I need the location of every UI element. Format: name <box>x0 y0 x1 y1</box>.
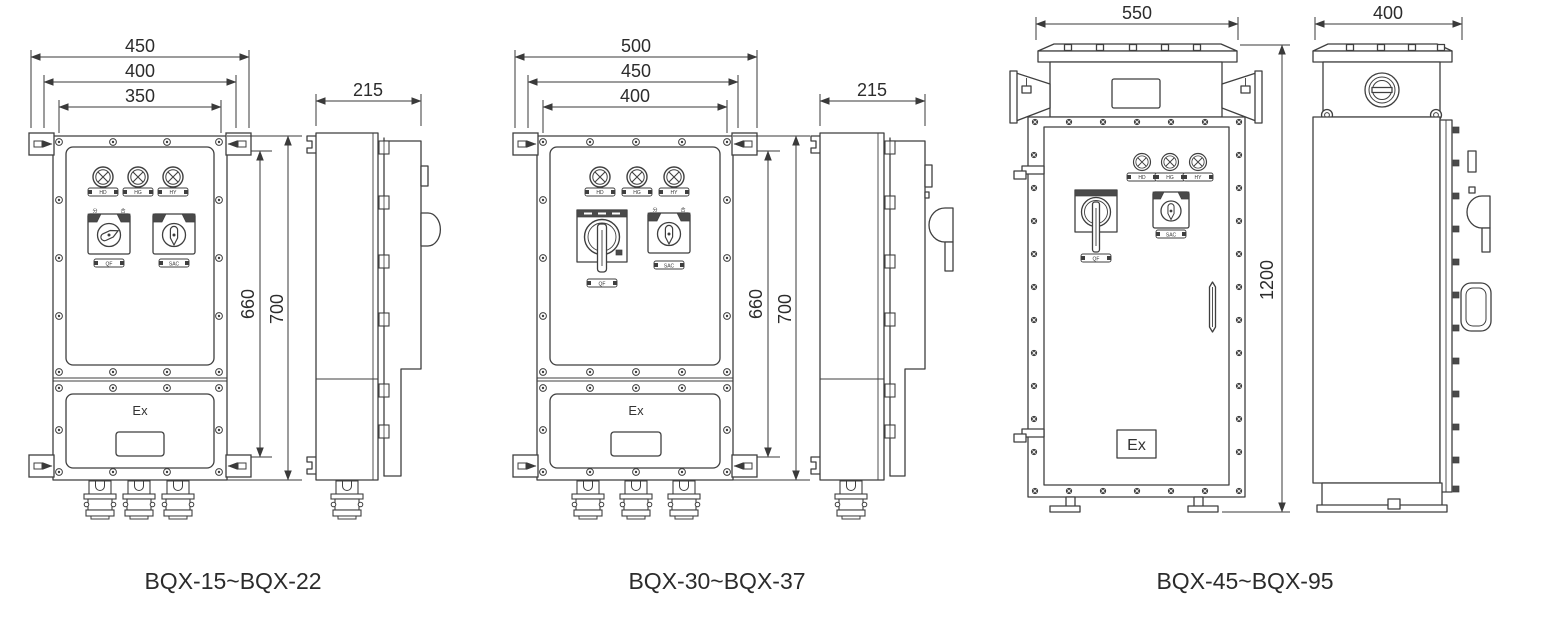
nameplate <box>116 432 164 456</box>
group-bqx-45-95: HD HG HY QF SA <box>1010 3 1491 594</box>
cable-gland-icon <box>123 481 155 519</box>
lamp-icon <box>128 167 148 187</box>
lamp-label: HY <box>170 190 178 196</box>
lamp-icon <box>1134 154 1151 171</box>
cable-gland-icon <box>572 481 604 519</box>
dim-width-inner: 400 <box>620 86 650 106</box>
side-view-2 <box>811 133 953 519</box>
breaker-lever-side <box>1467 196 1490 228</box>
cable-glands <box>84 481 194 519</box>
ex-marking: Ex <box>132 403 148 418</box>
lamp-icon <box>590 167 610 187</box>
dim-width-inner: 350 <box>125 86 155 106</box>
dim-width-outer: 450 <box>125 36 155 56</box>
switch-corner-label: 合 <box>680 207 685 214</box>
technical-drawing: HD HG HY 分 合 QF <box>0 0 1550 619</box>
base-plinth <box>1322 483 1442 507</box>
dim-height-outer: 700 <box>267 294 287 324</box>
side-view-3 <box>1313 44 1491 512</box>
lamp-icon <box>163 167 183 187</box>
dim-depth: 215 <box>857 80 887 100</box>
lamp-label: HY <box>671 190 679 196</box>
lamp-label: HY <box>1195 175 1203 181</box>
dim-height-inner: 660 <box>746 289 766 319</box>
entry-gland-icon <box>1365 73 1399 107</box>
cable-horn-left <box>1010 71 1050 123</box>
group-bqx-30-37: HD HG HY QF 分 合 <box>513 36 953 594</box>
switch-label: QF <box>106 262 113 268</box>
switch-corner-label: 分 <box>652 207 657 214</box>
drawing-sheet: HD HG HY 分 合 QF <box>0 0 1550 619</box>
door-latch <box>925 165 932 187</box>
switch-label: SAC <box>169 262 180 268</box>
ex-marking: Ex <box>1127 437 1146 454</box>
lamp-icon <box>1190 154 1207 171</box>
switch-corner-label: 分 <box>92 208 97 215</box>
caption-bqx-45-95: BQX-45~BQX-95 <box>1156 568 1333 594</box>
lamp-label: HG <box>134 190 142 196</box>
dim-depth: 400 <box>1373 3 1403 23</box>
rotary-switch-2: SAC <box>1153 192 1189 239</box>
lamp-icon <box>627 167 647 187</box>
dim-width-mid: 400 <box>125 61 155 81</box>
dim-width-outer: 500 <box>621 36 651 56</box>
cable-horn-right <box>1222 71 1262 123</box>
ex-marking: Ex <box>628 403 644 418</box>
junction-nameplate <box>1112 79 1160 108</box>
rotary-switch-2: SAC <box>153 214 195 268</box>
cable-gland-icon <box>162 481 194 519</box>
switch-corner-label: 合 <box>120 208 125 215</box>
switch-label: QF <box>599 282 606 288</box>
lamp-label: HG <box>1166 175 1174 181</box>
indicator-lamps: HD HG HY <box>88 167 188 196</box>
indicator-lamps: HD HG HY <box>585 167 689 196</box>
switch-label: SAC <box>1166 233 1177 239</box>
flange-bolts <box>1453 127 1459 492</box>
front-view-2: HD HG HY QF 分 合 <box>513 133 757 519</box>
side-view-1 <box>307 133 440 519</box>
dim-width-outer: 550 <box>1122 3 1152 23</box>
switch-label: SAC <box>664 264 675 270</box>
front-view-3: HD HG HY QF SA <box>1010 44 1262 512</box>
lamp-label: HD <box>99 190 107 196</box>
dim-height-inner: 660 <box>238 289 258 319</box>
caption-bqx-15-22: BQX-15~BQX-22 <box>144 568 321 594</box>
breaker-lever-side <box>929 208 953 242</box>
cable-gland-icon <box>835 481 867 519</box>
switch-label: QF <box>1093 257 1100 263</box>
cable-gland-icon <box>668 481 700 519</box>
cable-gland-icon <box>331 481 363 519</box>
lamp-icon <box>1162 154 1179 171</box>
cabinet-body <box>1313 117 1440 483</box>
lamp-label: HD <box>1138 175 1146 181</box>
lamp-icon <box>664 167 684 187</box>
cable-gland-icon <box>620 481 652 519</box>
lamp-icon <box>93 167 113 187</box>
cable-glands <box>572 481 700 519</box>
indicator-lamps: HD HG HY <box>1127 154 1213 182</box>
lamp-label: HD <box>596 190 604 196</box>
group-bqx-15-22: HD HG HY 分 合 QF <box>29 36 440 594</box>
dim-depth: 215 <box>353 80 383 100</box>
feet <box>1050 497 1218 512</box>
front-view-1: HD HG HY 分 合 QF <box>29 133 251 519</box>
caption-bqx-30-37: BQX-30~BQX-37 <box>628 568 805 594</box>
dim-height-outer: 700 <box>775 294 795 324</box>
nameplate <box>611 432 661 456</box>
dim-width-mid: 450 <box>621 61 651 81</box>
door-latch <box>1468 151 1476 172</box>
cable-gland-icon <box>84 481 116 519</box>
pull-handle <box>1461 283 1491 331</box>
dim-height-outer: 1200 <box>1257 260 1277 300</box>
side-handle <box>421 213 440 246</box>
lamp-label: HG <box>633 190 641 196</box>
door-latch <box>421 166 428 186</box>
